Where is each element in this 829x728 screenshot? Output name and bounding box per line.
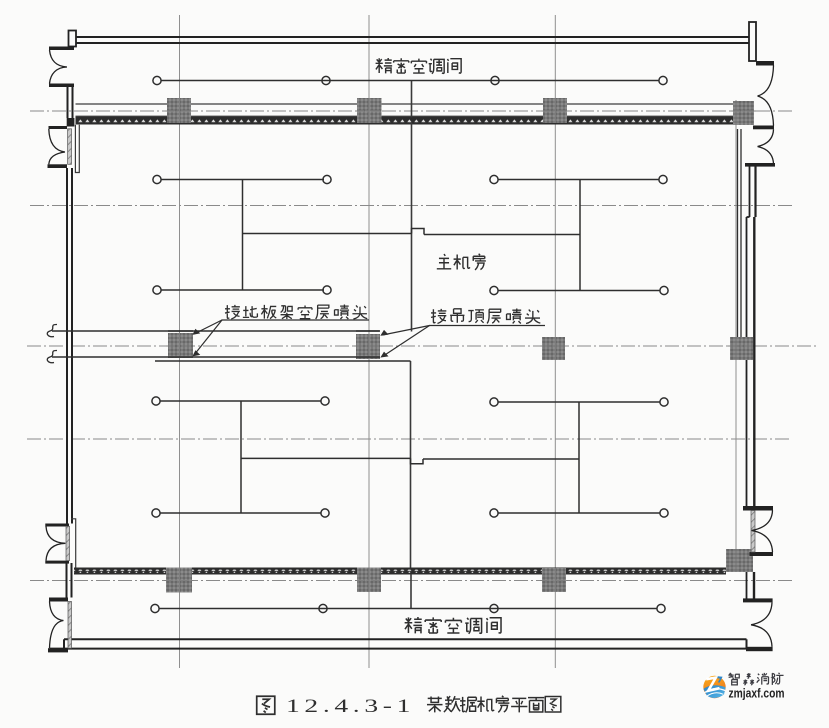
svg-text:zmjaxf.com: zmjaxf.com [729,686,785,701]
svg-text:12.4.3-1: 12.4.3-1 [286,696,415,717]
